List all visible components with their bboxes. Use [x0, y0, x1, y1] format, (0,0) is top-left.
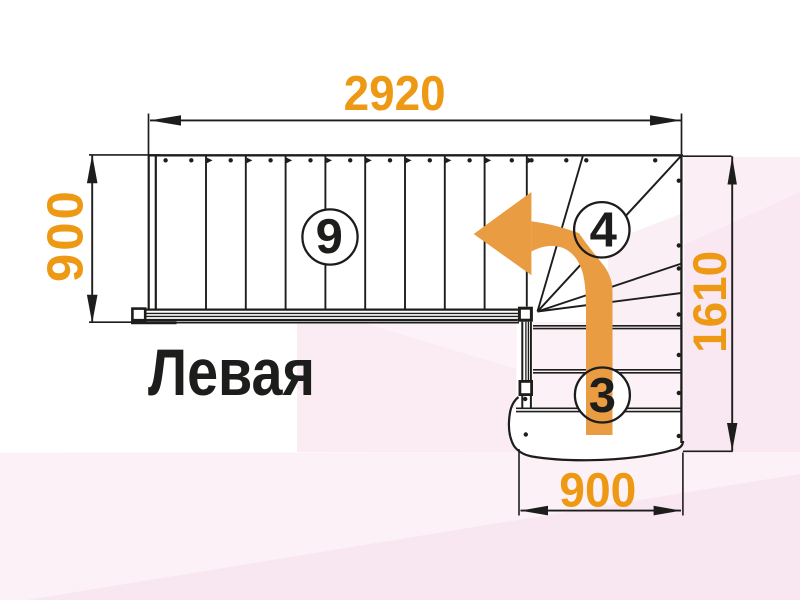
svg-text:9: 9: [316, 210, 343, 264]
svg-text:2920: 2920: [344, 67, 446, 121]
svg-text:900: 900: [559, 464, 636, 517]
svg-text:3: 3: [589, 369, 616, 423]
svg-text:1610: 1610: [683, 251, 736, 353]
svg-text:4: 4: [590, 204, 617, 258]
svg-text:Левая: Левая: [148, 335, 315, 409]
svg-text:900: 900: [37, 191, 94, 282]
